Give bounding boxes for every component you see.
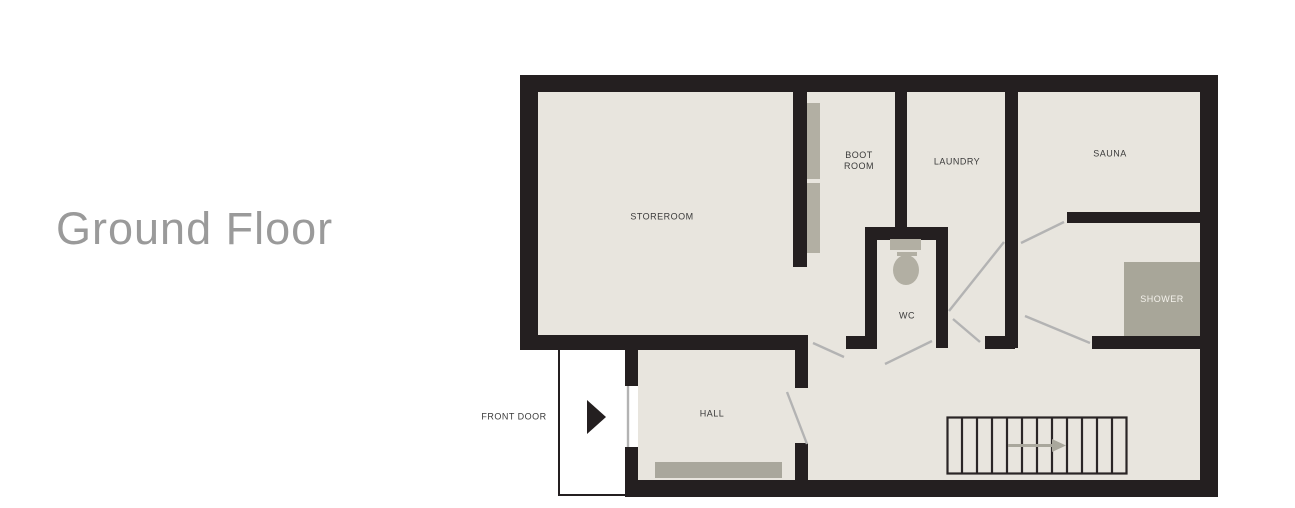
page-title: Ground Floor	[56, 203, 333, 255]
wall-hall-left-upper	[625, 348, 638, 386]
wall-storeroom-bootroom	[793, 92, 807, 267]
room-label-laundry: LAUNDRY	[934, 157, 980, 168]
front-door-porch	[558, 348, 626, 496]
room-label-shower: SHOWER	[1140, 294, 1184, 305]
wall-shower-bottom	[1092, 336, 1200, 349]
bootroom-shelf-upper	[807, 103, 820, 179]
wall-wc-left-stub	[846, 336, 877, 349]
boot-room-line1: BOOT	[845, 150, 873, 160]
wall-outer-left	[520, 75, 538, 348]
floor-plan-page: Ground Floor SHOWER	[0, 0, 1295, 508]
wall-wc-left	[865, 227, 877, 348]
wall-bootroom-laundry	[895, 92, 907, 228]
wall-wc-right	[936, 227, 948, 348]
wall-outer-top	[520, 75, 1218, 92]
wall-storeroom-bottom	[520, 335, 808, 350]
room-label-hall: HALL	[700, 409, 725, 420]
shower-tray: SHOWER	[1124, 262, 1200, 336]
hall-mat	[655, 462, 782, 478]
room-label-wc: WC	[899, 311, 915, 322]
wall-laundry-sauna	[1005, 92, 1018, 348]
room-label-boot-room: BOOTROOM	[844, 150, 874, 172]
wall-sauna-bottom	[1067, 212, 1200, 223]
wall-outer-bottom	[625, 480, 1218, 497]
wall-hall-left-lower	[625, 447, 638, 497]
wall-outer-right	[1200, 75, 1218, 497]
wall-hall-right-upper	[795, 335, 808, 388]
room-label-storeroom: STOREROOM	[630, 212, 693, 223]
boot-room-line2: ROOM	[844, 161, 874, 171]
label-front-door: FRONT DOOR	[481, 412, 546, 423]
wall-hall-right-lower	[795, 443, 808, 497]
room-label-sauna: SAUNA	[1093, 149, 1127, 160]
bootroom-shelf-lower	[807, 183, 820, 253]
